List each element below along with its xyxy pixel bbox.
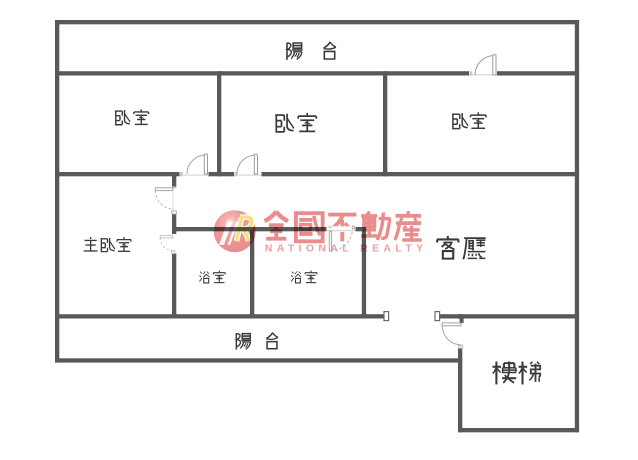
svg-text:NATIONAL REALTY: NATIONAL REALTY: [265, 242, 428, 254]
